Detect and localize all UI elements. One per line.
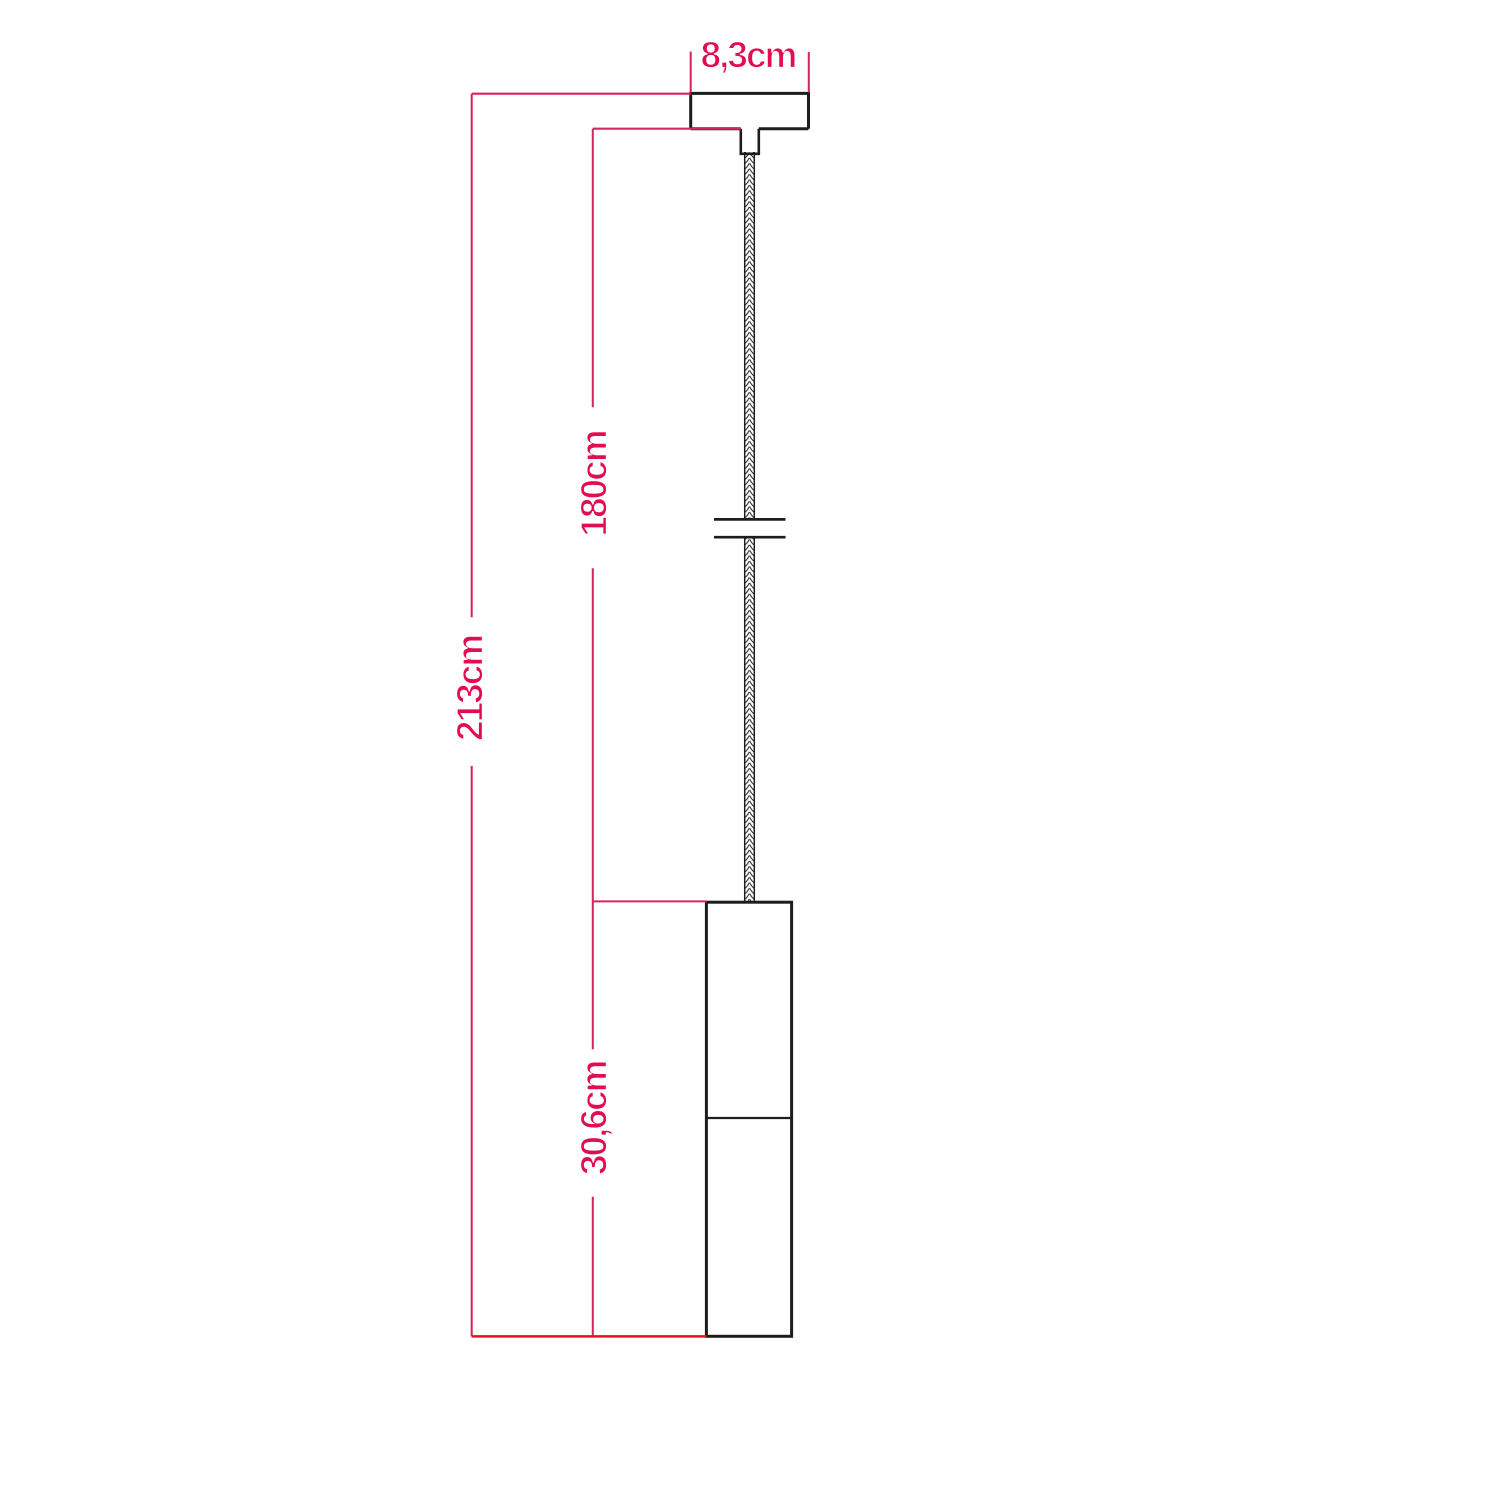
svg-text:8,3cm: 8,3cm (701, 35, 796, 76)
svg-text:30,6cm: 30,6cm (573, 1061, 614, 1175)
svg-text:180cm: 180cm (573, 431, 614, 536)
svg-text:213cm: 213cm (449, 636, 490, 741)
